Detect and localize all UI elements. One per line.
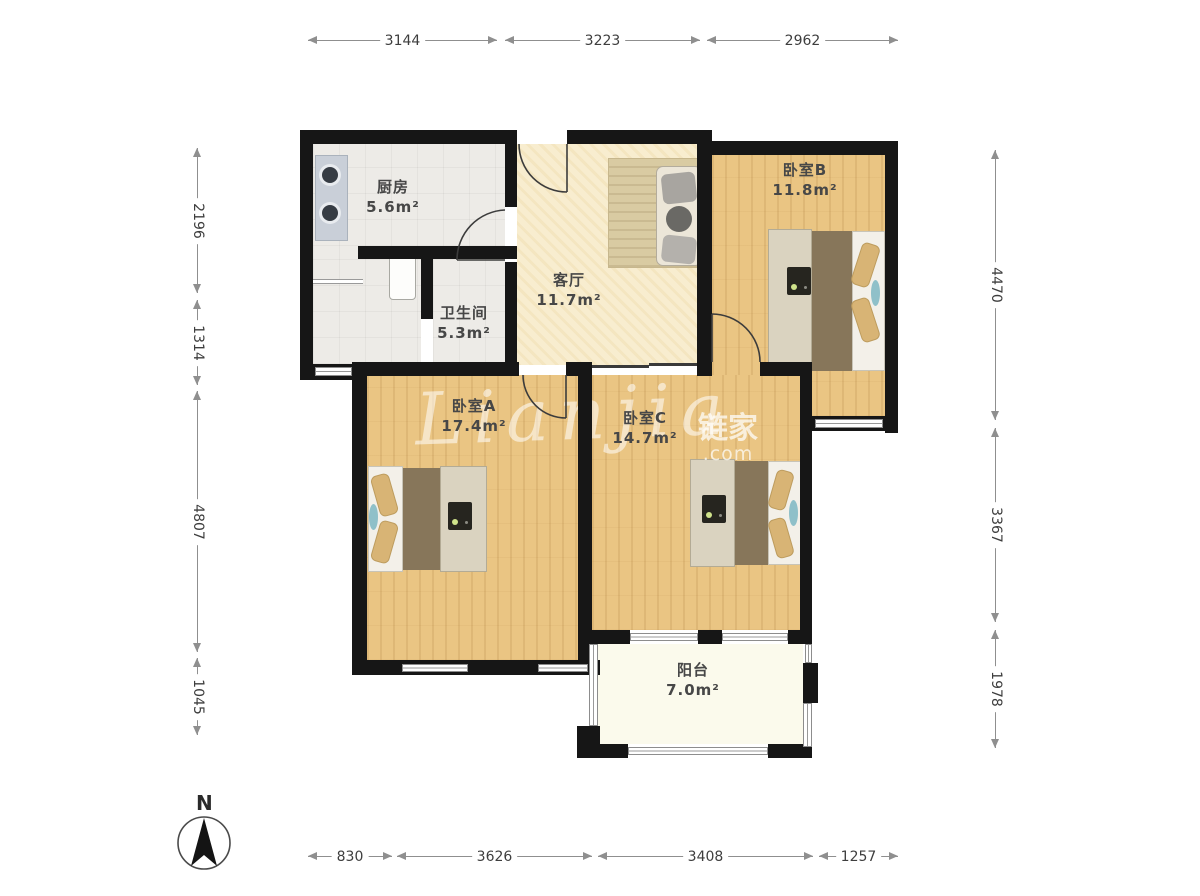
bedroomC-area: 14.7m² — [595, 428, 695, 448]
room-label-bedroomB: 卧室B 11.8m² — [755, 160, 855, 200]
dim-left-2: 1314 — [197, 300, 198, 385]
sofa-seat-round — [666, 206, 692, 232]
dim-label: 1314 — [190, 320, 206, 366]
dim-label: 3626 — [472, 849, 518, 865]
window-bedroomA-1 — [402, 664, 468, 672]
partition-living-bedroomC-b — [649, 363, 699, 366]
dim-top-1: 3144 — [308, 40, 497, 41]
wall-balcony-top-a — [588, 630, 630, 644]
dim-label: 1978 — [988, 666, 1004, 712]
dim-label: 2196 — [190, 198, 206, 244]
wall-balcony-bottom-a — [600, 744, 628, 758]
window-balcony-top — [722, 633, 788, 641]
window-bedroomA-2 — [538, 664, 588, 672]
window-balcony-right-top — [805, 644, 812, 663]
wall-balcony-corner-r — [803, 663, 818, 703]
dim-top-2: 3223 — [505, 40, 700, 41]
dim-right-3: 1978 — [995, 630, 996, 748]
bathroom-name: 卫生间 — [414, 303, 514, 323]
dim-bottom-4: 1257 — [819, 856, 898, 857]
room-label-bedroomC: 卧室C 14.7m² — [595, 408, 695, 448]
wall-bedroomA-top-west — [352, 362, 519, 376]
washing-machine — [389, 252, 416, 300]
bedroomB-name: 卧室B — [755, 160, 855, 180]
wall-bedroomA-left — [352, 362, 367, 675]
window-balcony-door — [630, 633, 698, 641]
window-bedroomB — [815, 419, 883, 428]
kitchen-counter-line — [313, 279, 363, 284]
balcony-name: 阳台 — [643, 660, 743, 680]
compass-needle — [191, 818, 217, 866]
kitchen-name: 厨房 — [343, 177, 443, 197]
wall-top-bedroomB — [700, 141, 898, 155]
dim-right-1: 4470 — [995, 150, 996, 420]
sofa-cushion-top — [661, 171, 698, 204]
dim-bottom-2: 3626 — [397, 856, 592, 857]
window-balcony-bottom — [628, 747, 768, 755]
wall-kitchen-bathroom — [358, 246, 517, 259]
kitchen-area: 5.6m² — [343, 197, 443, 217]
window-balcony-left — [589, 644, 598, 726]
compass-north-label: N — [196, 791, 213, 815]
window-balcony-right — [803, 703, 812, 747]
living-area: 11.7m² — [519, 290, 619, 310]
dim-label: 1045 — [190, 674, 206, 720]
bedroomC-name: 卧室C — [595, 408, 695, 428]
bedroomB-wardrobe — [768, 229, 812, 373]
partition-living-bedroomC-a — [592, 365, 649, 368]
compass-circle — [178, 817, 230, 869]
stove-burner-1 — [322, 167, 338, 183]
dim-top-3: 2962 — [707, 40, 898, 41]
dim-left-4: 1045 — [197, 658, 198, 735]
dim-right-2: 3367 — [995, 428, 996, 622]
bedroomB-area: 11.8m² — [755, 180, 855, 200]
living-name: 客厅 — [519, 270, 619, 290]
dim-label: 4807 — [190, 499, 206, 545]
dim-left-3: 4807 — [197, 391, 198, 652]
dim-label: 1257 — [836, 849, 882, 865]
balcony-area: 7.0m² — [643, 680, 743, 700]
room-label-bathroom: 卫生间 5.3m² — [414, 303, 514, 343]
wall-left-outer — [300, 130, 313, 380]
wall-kitchen-living-upper — [505, 141, 517, 207]
bedroomA-area: 17.4m² — [424, 416, 524, 436]
wall-balcony-top-c — [788, 630, 812, 644]
bathroom-area: 5.3m² — [414, 323, 514, 343]
dim-label: 3408 — [683, 849, 729, 865]
room-label-living: 客厅 11.7m² — [519, 270, 619, 310]
dim-label: 2962 — [780, 33, 826, 49]
bedroomC-lamp — [789, 500, 798, 526]
room-label-kitchen: 厨房 5.6m² — [343, 177, 443, 217]
room-label-balcony: 阳台 7.0m² — [643, 660, 743, 700]
wall-balcony-top-b — [698, 630, 722, 644]
bedroomA-lamp — [369, 504, 378, 530]
sofa-cushion-bottom — [661, 234, 698, 264]
bedroomB-bed-blanket — [812, 231, 852, 371]
dim-bottom-3: 3408 — [598, 856, 813, 857]
dim-left-1: 2196 — [197, 148, 198, 293]
room-label-bedroomA: 卧室A 17.4m² — [424, 396, 524, 436]
wall-top-living — [567, 130, 712, 144]
bedroomC-tv-panel — [702, 495, 726, 523]
wall-bedroomB-right — [885, 141, 898, 433]
dim-label: 4470 — [988, 262, 1004, 308]
wall-bedroomB-left — [697, 141, 712, 366]
wall-top-kitchen — [300, 130, 517, 144]
dim-bottom-1: 830 — [308, 856, 392, 857]
dim-label: 3367 — [988, 502, 1004, 548]
bedroomC-bed-blanket — [735, 461, 768, 565]
bedroomA-name: 卧室A — [424, 396, 524, 416]
bedroomA-bed-blanket — [403, 468, 440, 570]
wall-bedroomC-right — [800, 362, 812, 632]
bedroomB-tv-panel — [787, 267, 811, 295]
stove-burner-2 — [322, 205, 338, 221]
dim-label: 830 — [332, 849, 369, 865]
bedroomA-tv-panel — [448, 502, 472, 530]
window-utility — [315, 367, 352, 376]
dim-label: 3144 — [380, 33, 426, 49]
floor-plan: Lianjia 链家 .com — [0, 0, 1200, 896]
dim-label: 3223 — [580, 33, 626, 49]
wall-balcony-corner-bl — [577, 726, 600, 758]
wall-A-C-divider — [578, 362, 592, 662]
bedroomB-lamp — [871, 280, 880, 306]
